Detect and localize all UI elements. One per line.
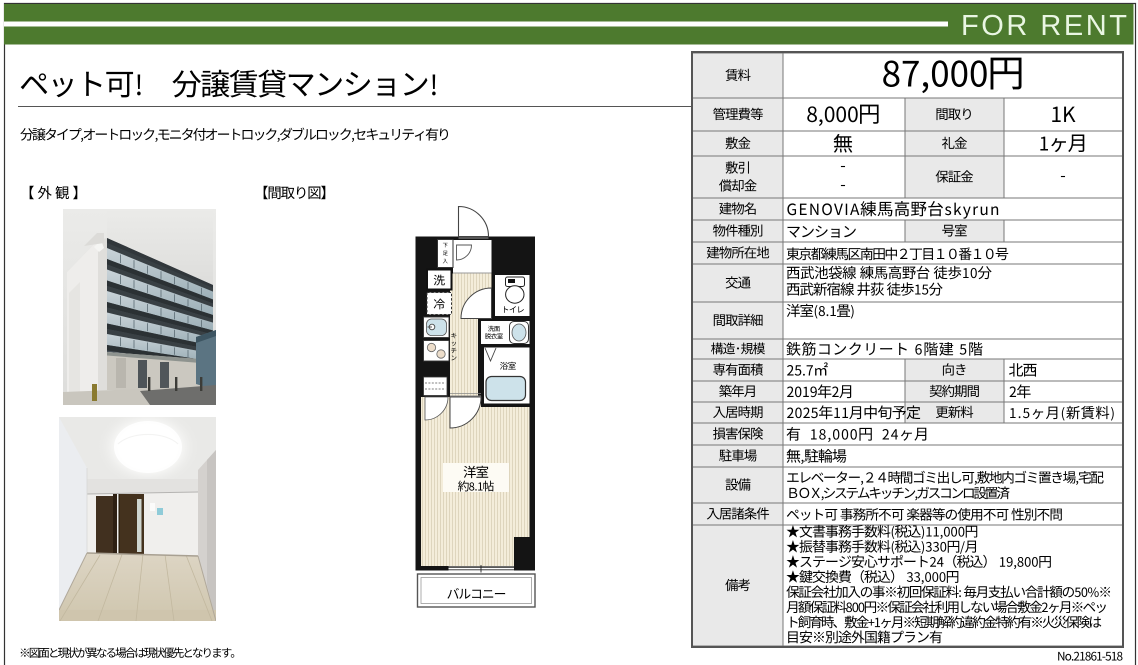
svg-text:FOR RENT: FOR RENT xyxy=(961,10,1127,42)
